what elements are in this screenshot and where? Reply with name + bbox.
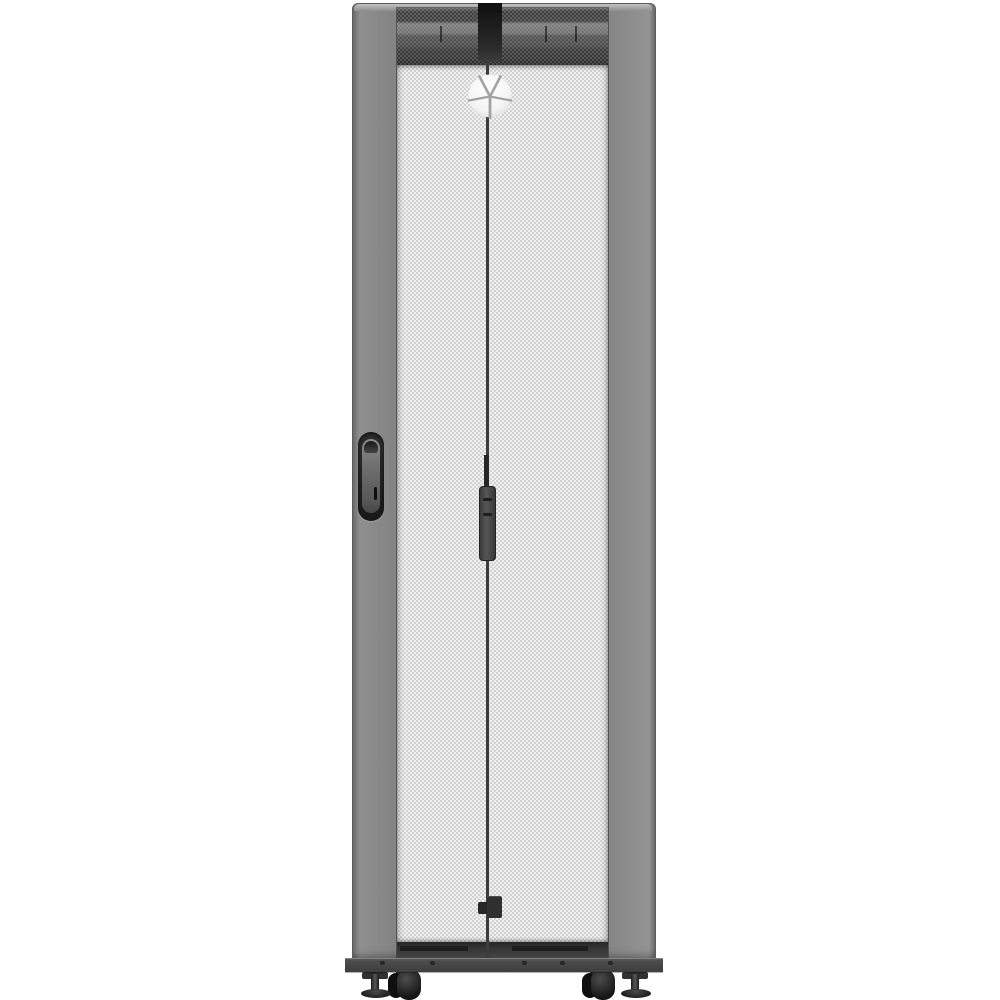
bracket-block bbox=[487, 896, 502, 918]
rail-slot bbox=[400, 946, 468, 952]
base-bolt bbox=[608, 961, 613, 965]
base-bolt bbox=[430, 961, 435, 965]
foot-disc bbox=[361, 989, 391, 998]
vertiv-logo-icon bbox=[466, 72, 514, 120]
door-top-vent-band bbox=[397, 8, 608, 65]
door-handle-recess bbox=[364, 441, 378, 453]
base-plinth bbox=[345, 958, 663, 972]
vent-slot bbox=[575, 26, 577, 42]
caster-front-wheel bbox=[591, 969, 615, 1000]
base-bolt bbox=[522, 961, 527, 965]
center-latch bbox=[479, 486, 496, 561]
door-top-hinge-block bbox=[478, 3, 502, 62]
door-edge-shading bbox=[397, 65, 608, 942]
photo-canvas bbox=[0, 0, 1000, 1000]
base-bolt bbox=[560, 961, 565, 965]
vent-slot bbox=[545, 26, 547, 42]
bottom-latch-bracket bbox=[478, 896, 503, 918]
latch-screw-slot bbox=[483, 498, 492, 501]
foot-disc bbox=[621, 989, 651, 998]
latch-screw-slot bbox=[483, 513, 492, 516]
keyhole-icon bbox=[374, 487, 377, 500]
rail-slot bbox=[512, 946, 588, 952]
mesh-door bbox=[397, 8, 608, 958]
door-bottom-rail bbox=[397, 942, 608, 958]
door-handle bbox=[358, 432, 384, 521]
server-rack bbox=[352, 3, 656, 998]
caster-front-wheel bbox=[397, 969, 421, 1000]
vent-slot bbox=[440, 26, 442, 42]
base-bolt bbox=[380, 961, 385, 965]
